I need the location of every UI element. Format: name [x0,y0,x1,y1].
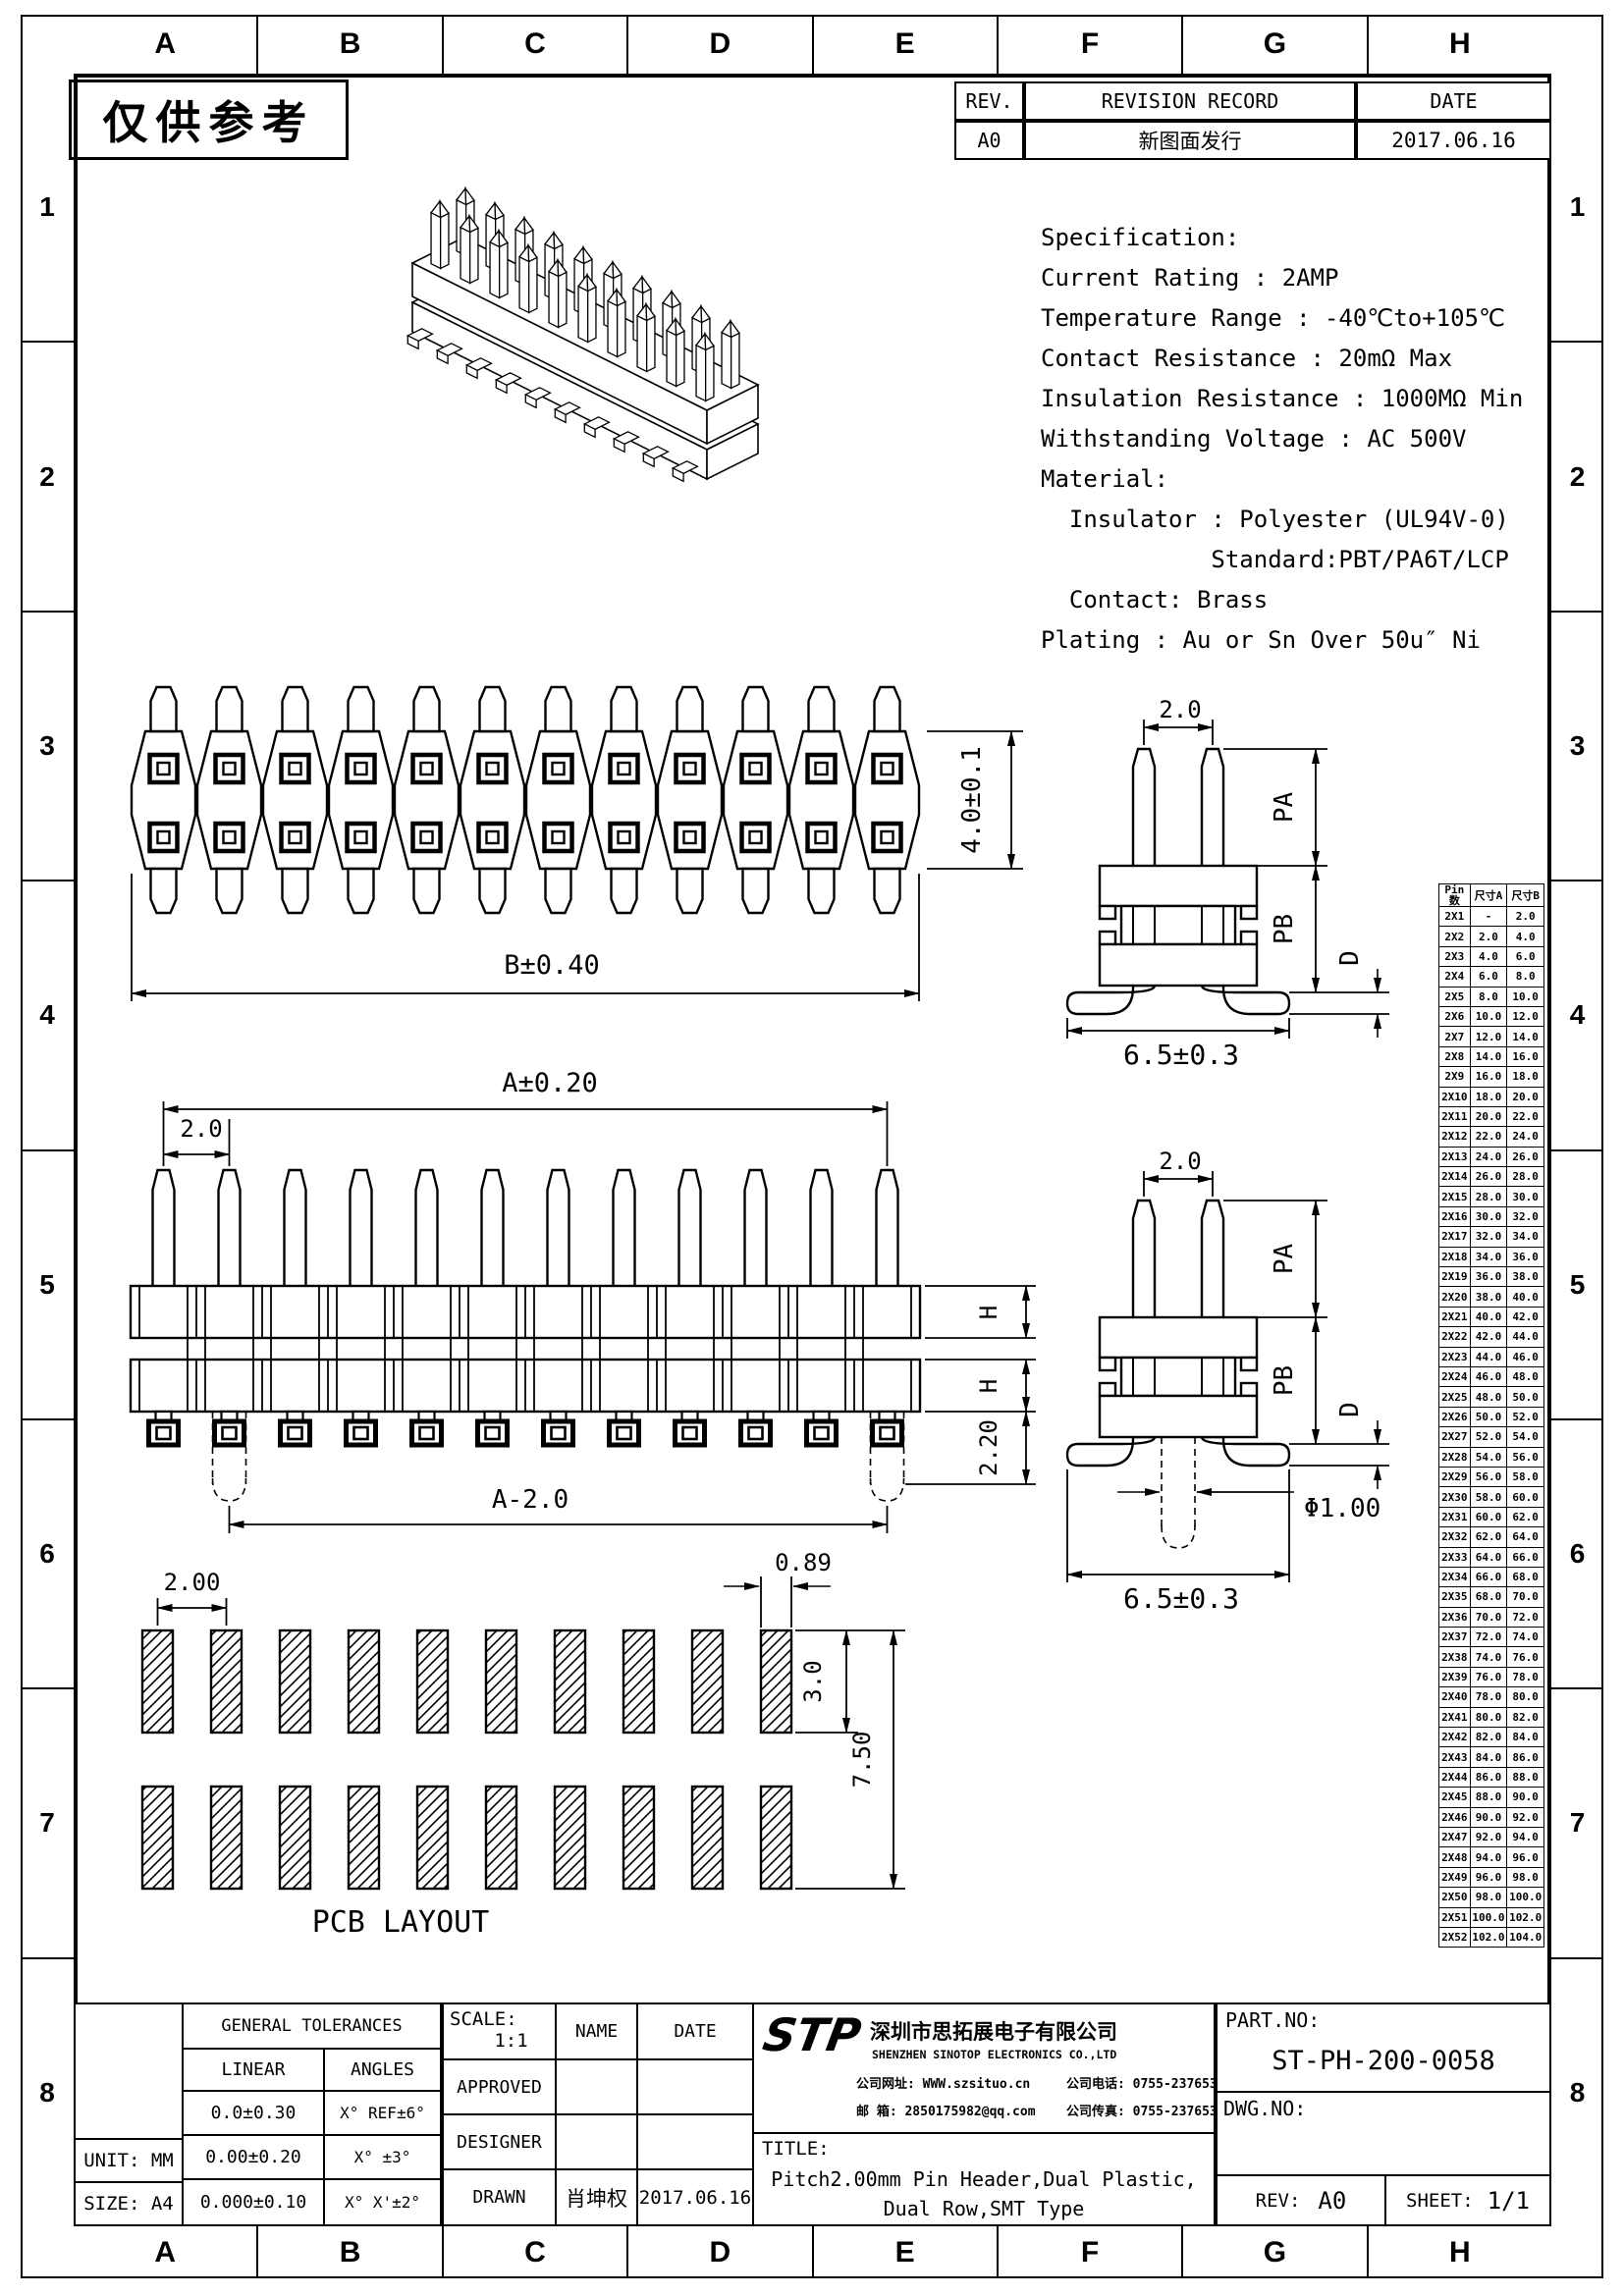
size-table-cell: 2X32 [1439,1527,1471,1547]
size-table-cell: 2X18 [1439,1247,1471,1266]
size-table-cell: 2X17 [1439,1227,1471,1247]
size-table-row: 2X4180.082.0 [1439,1707,1544,1727]
size-table-cell: 2X27 [1439,1427,1471,1447]
size-table-cell: 2X8 [1439,1046,1471,1066]
size-table-cell: 78.0 [1470,1687,1507,1707]
name-header: NAME [555,2002,638,2060]
dwg-no-cell: DWG.NO: [1216,2091,1551,2176]
size-table-cell: 76.0 [1470,1667,1507,1686]
size-table-cell: 10.0 [1507,987,1544,1006]
size-table-cell: 56.0 [1470,1467,1507,1486]
size-table-cell: 24.0 [1507,1127,1544,1147]
size-table-cell: 88.0 [1470,1788,1507,1807]
size-table-cell: 24.0 [1470,1147,1507,1166]
size-table-cell: 104.0 [1507,1927,1544,1947]
svg-text:PA: PA [1270,792,1299,824]
pcb-layout-view: 2.000.893.07.50PCB LAYOUT [142,1549,905,1940]
size-table-cell: 2X6 [1439,1006,1471,1026]
size-table-row: 2X58.010.0 [1439,987,1544,1006]
size-table-cell: 10.0 [1470,1006,1507,1026]
size-table-cell: 50.0 [1470,1407,1507,1426]
size-table-row: 2X3568.070.0 [1439,1587,1544,1607]
size-table-cell: 2X51 [1439,1907,1471,1927]
size-table-row: 2X52102.0104.0 [1439,1927,1544,1947]
svg-text:3.0: 3.0 [799,1660,827,1702]
size-table-cell: 2X5 [1439,987,1471,1006]
pcb-pad [349,1630,379,1733]
size-table-cell: 2X37 [1439,1628,1471,1647]
size-table-row: 2X2242.044.0 [1439,1327,1544,1347]
approved-name-cell [555,2058,638,2115]
size-table-cell: 2X50 [1439,1888,1471,1907]
size-table-row: 2X3160.062.0 [1439,1507,1544,1526]
svg-text:PB: PB [1270,1365,1299,1396]
company-name-en: SHENZHEN SINOTOP ELECTRONICS CO.,LTD [872,2048,1116,2061]
size-table-cell: 60.0 [1507,1487,1544,1507]
website-label: 公司网址: [856,2077,915,2092]
size-table-header-pins: Pin数 [1439,884,1471,907]
pcb-pad [486,1787,516,1889]
size-table-row: 2X2548.050.0 [1439,1387,1544,1407]
svg-text:D: D [1335,1402,1365,1417]
size-table-cell: 2X11 [1439,1106,1471,1126]
size-table-cell: - [1470,907,1507,927]
size-table-cell: 42.0 [1507,1307,1544,1326]
pcb-pad [142,1630,173,1733]
size-table-cell: 2X30 [1439,1487,1471,1507]
size-table-cell: 66.0 [1507,1547,1544,1567]
size-table-cell: 2X44 [1439,1767,1471,1787]
size-table-row: 2X1222.024.0 [1439,1127,1544,1147]
size-table-cell: 2X45 [1439,1788,1471,1807]
scale-cell: SCALE: 1:1 [442,2002,557,2060]
size-table-cell: 98.0 [1470,1888,1507,1907]
size-table-row: 2X916.018.0 [1439,1067,1544,1087]
svg-text:2.20: 2.20 [975,1419,1002,1476]
size-table-cell: 2X34 [1439,1567,1471,1586]
designer-label: DESIGNER [442,2113,557,2170]
website-value: WWW.szsituo.cn [923,2077,1031,2092]
size-table-row: 2X1324.026.0 [1439,1147,1544,1166]
svg-text:D: D [1335,950,1365,966]
rev-label: REV: [1256,2190,1301,2212]
size-table-header-b: 尺寸B [1507,884,1544,907]
size-table-cell: 2.0 [1470,927,1507,946]
size-table-row: 2X2854.056.0 [1439,1447,1544,1467]
size-table: Pin数 尺寸A 尺寸B 2X1-2.02X22.04.02X34.06.02X… [1438,883,1544,1948]
company-fax: 公司传真: 0755-23765341 [1066,2101,1232,2119]
size-table-cell: 48.0 [1507,1366,1544,1386]
unit-label: UNIT: MM [74,2138,184,2183]
size-table-row: 2X4894.096.0 [1439,1847,1544,1867]
size-table-cell: 26.0 [1507,1147,1544,1166]
size-table-cell: 36.0 [1507,1247,1544,1266]
designer-name-cell [555,2113,638,2170]
size-table-row: 2X4996.098.0 [1439,1867,1544,1887]
size-table-cell: 2X14 [1439,1167,1471,1187]
size-table-row: 2X34.06.0 [1439,946,1544,966]
part-no-label: PART.NO: [1225,2008,1320,2032]
size-table-cell: 88.0 [1507,1767,1544,1787]
tolerance-linear-3: 0.000±0.10 [182,2178,325,2226]
size-table-cell: 2X26 [1439,1407,1471,1426]
side-view-lower: 2.0PAPBD6.5±0.3Φ1.00 [1067,1148,1389,1615]
svg-text:4.0±0.1: 4.0±0.1 [957,746,987,854]
size-table-cell: 92.0 [1470,1827,1507,1846]
pcb-pad [692,1787,723,1889]
size-table-cell: 2X38 [1439,1647,1471,1667]
size-table-cell: 2X1 [1439,907,1471,927]
size-table-cell: 80.0 [1470,1707,1507,1727]
size-table-cell: 96.0 [1470,1867,1507,1887]
size-table-cell: 2X42 [1439,1728,1471,1747]
date-header: DATE [636,2002,754,2060]
size-table-cell: 2X4 [1439,967,1471,987]
size-table-cell: 2X36 [1439,1607,1471,1627]
size-table-cell: 30.0 [1507,1187,1544,1206]
size-table-cell: 4.0 [1507,927,1544,946]
size-table-cell: 38.0 [1507,1267,1544,1287]
size-table-cell: 2X31 [1439,1507,1471,1526]
size-table-cell: 72.0 [1507,1607,1544,1627]
size-table-cell: 102.0 [1507,1907,1544,1927]
size-table-row: 2X3364.066.0 [1439,1547,1544,1567]
size-table-cell: 2X10 [1439,1087,1471,1106]
sheet-label: SHEET: [1406,2190,1474,2212]
size-table-cell: 94.0 [1507,1827,1544,1846]
size-table-cell: 52.0 [1507,1407,1544,1426]
svg-text:PA: PA [1270,1244,1299,1275]
size-table-cell: 64.0 [1507,1527,1544,1547]
size-table-row: 2X610.012.0 [1439,1006,1544,1026]
size-table-row: 2X3976.078.0 [1439,1667,1544,1686]
svg-text:0.89: 0.89 [775,1549,832,1576]
size-table-row: 2X3772.074.0 [1439,1628,1544,1647]
tolerance-linear-header: LINEAR [182,2048,325,2092]
size-table-cell: 60.0 [1470,1507,1507,1526]
size-table-cell: 2X21 [1439,1307,1471,1326]
size-table-cell: 68.0 [1507,1567,1544,1586]
size-table-row: 2X4384.086.0 [1439,1747,1544,1767]
company-cell: STP 深圳市思拓展电子有限公司 SHENZHEN SINOTOP ELECTR… [752,2002,1216,2134]
size-label: SIZE: A4 [74,2181,184,2226]
size-table-row: 2X46.08.0 [1439,967,1544,987]
size-table-row: 2X3874.076.0 [1439,1647,1544,1667]
size-table-cell: 2X41 [1439,1707,1471,1727]
size-table-cell: 64.0 [1470,1547,1507,1567]
size-table-cell: 90.0 [1470,1807,1507,1827]
size-table-row: 2X814.016.0 [1439,1046,1544,1066]
size-table-cell: 2X47 [1439,1827,1471,1846]
size-table-cell: 44.0 [1470,1347,1507,1366]
size-table-cell: 52.0 [1470,1427,1507,1447]
size-table-cell: 58.0 [1470,1487,1507,1507]
size-table-cell: 2X2 [1439,927,1471,946]
size-table-cell: 74.0 [1470,1647,1507,1667]
size-table-cell: 2X52 [1439,1927,1471,1947]
size-table-cell: 38.0 [1470,1287,1507,1307]
size-table-cell: 6.0 [1470,967,1507,987]
size-table-cell: 2X12 [1439,1127,1471,1147]
title-cell: TITLE: Pitch2.00mm Pin Header,Dual Plast… [752,2132,1216,2226]
company-tel: 公司电话: 0755-23765350 [1066,2073,1232,2092]
size-table-row: 2X1426.028.0 [1439,1167,1544,1187]
size-table-row: 2X1-2.0 [1439,907,1544,927]
drawing-title-line2: Dual Row,SMT Type [754,2197,1214,2220]
size-table-cell: 70.0 [1470,1607,1507,1627]
tolerance-angle-3: X° X'±2° [323,2178,442,2226]
size-table-cell: 2X3 [1439,946,1471,966]
scale-label: SCALE: [450,2008,517,2030]
size-table-cell: 34.0 [1507,1227,1544,1247]
svg-text:H: H [975,1379,1002,1393]
size-table-cell: 2X19 [1439,1267,1471,1287]
size-table-cell: 100.0 [1507,1888,1544,1907]
size-table-cell: 74.0 [1507,1628,1544,1647]
fax-label: 公司传真: [1066,2105,1125,2119]
svg-text:H: H [975,1306,1002,1319]
size-table-row: 2X712.014.0 [1439,1027,1544,1046]
size-table-cell: 2X35 [1439,1587,1471,1607]
size-table-cell: 14.0 [1470,1046,1507,1066]
drawn-label: DRAWN [442,2168,557,2226]
size-table-cell: 16.0 [1507,1046,1544,1066]
size-table-cell: 54.0 [1470,1447,1507,1467]
size-table-row: 2X2344.046.0 [1439,1347,1544,1366]
size-table-row: 2X4792.094.0 [1439,1827,1544,1846]
size-table-row: 2X1018.020.0 [1439,1087,1544,1106]
size-table-cell: 2X49 [1439,1867,1471,1887]
size-table-cell: 54.0 [1507,1427,1544,1447]
designer-date-cell [636,2113,754,2170]
tel-label: 公司电话: [1066,2077,1125,2092]
rev-value: A0 [1318,2187,1346,2215]
svg-text:6.5±0.3: 6.5±0.3 [1123,1582,1239,1615]
size-table-row: 2X51100.0102.0 [1439,1907,1544,1927]
pcb-pad [623,1787,654,1889]
size-table-cell: 16.0 [1470,1067,1507,1087]
size-table-cell: 36.0 [1470,1267,1507,1287]
size-table-row: 2X1834.036.0 [1439,1247,1544,1266]
rev-cell: REV: A0 [1216,2174,1386,2226]
pcb-pad [761,1787,791,1889]
size-table-cell: 82.0 [1470,1728,1507,1747]
size-table-row: 2X2956.058.0 [1439,1467,1544,1486]
size-table-cell: 12.0 [1507,1006,1544,1026]
pcb-pad [692,1630,723,1733]
size-table-cell: 96.0 [1507,1847,1544,1867]
drawing-sheet: ABCDEFGH ABCDEFGH 12345678 12345678 仅供参考… [0,0,1624,2296]
size-table-row: 2X2446.048.0 [1439,1366,1544,1386]
svg-text:B±0.40: B±0.40 [504,950,600,981]
tolerance-angle-1: X° REF±6° [323,2090,442,2136]
size-table-cell: 2X33 [1439,1547,1471,1567]
size-table-cell: 2X23 [1439,1347,1471,1366]
size-table-cell: 20.0 [1507,1087,1544,1106]
size-table-row: 2X2038.040.0 [1439,1287,1544,1307]
size-table-row: 2X4588.090.0 [1439,1788,1544,1807]
tolerance-angle-2: X° ±3° [323,2134,442,2180]
size-table-cell: 2X20 [1439,1287,1471,1307]
company-name-cn: 深圳市思拓展电子有限公司 [870,2016,1117,2046]
size-table-cell: 2X39 [1439,1667,1471,1686]
size-table-cell: 22.0 [1507,1106,1544,1126]
svg-text:2.00: 2.00 [164,1569,221,1596]
size-table-cell: 58.0 [1507,1467,1544,1486]
size-table-cell: 4.0 [1470,946,1507,966]
tolerance-angles-header: ANGLES [323,2048,442,2092]
size-table-cell: 2X25 [1439,1387,1471,1407]
size-table-cell: 28.0 [1470,1187,1507,1206]
size-table-cell: 18.0 [1470,1087,1507,1106]
size-table-cell: 80.0 [1507,1687,1544,1707]
company-website: 公司网址: WWW.szsituo.cn [856,2073,1030,2092]
size-table-cell: 2X40 [1439,1687,1471,1707]
general-tolerances-title: GENERAL TOLERANCES [182,2002,442,2050]
pcb-pad [555,1787,585,1889]
scale-value: 1:1 [494,2030,527,2052]
size-table-cell: 84.0 [1507,1728,1544,1747]
size-table-cell: 46.0 [1507,1347,1544,1366]
pcb-pad [280,1630,310,1733]
size-table-cell: 2X43 [1439,1747,1471,1767]
size-table-row: 2X4078.080.0 [1439,1687,1544,1707]
size-table-cell: 34.0 [1470,1247,1507,1266]
size-table-row: 2X4282.084.0 [1439,1728,1544,1747]
size-table-cell: 30.0 [1470,1206,1507,1226]
size-table-cell: 82.0 [1507,1707,1544,1727]
pcb-pad [417,1787,448,1889]
isometric-view [407,188,758,481]
size-table-cell: 44.0 [1507,1327,1544,1347]
size-table-row: 2X3466.068.0 [1439,1567,1544,1586]
svg-text:Φ1.00: Φ1.00 [1304,1494,1380,1523]
pcb-pad [211,1630,242,1733]
size-table-row: 2X3058.060.0 [1439,1487,1544,1507]
size-table-cell: 92.0 [1507,1807,1544,1827]
size-table-cell: 102.0 [1470,1927,1507,1947]
drawing-title-line1: Pitch2.00mm Pin Header,Dual Plastic, [754,2167,1214,2191]
size-table-cell: 12.0 [1470,1027,1507,1046]
size-table-cell: 28.0 [1507,1167,1544,1187]
svg-text:PCB LAYOUT: PCB LAYOUT [312,1905,490,1940]
size-table-cell: 62.0 [1507,1507,1544,1526]
size-table-row: 2X3262.064.0 [1439,1527,1544,1547]
tolerance-linear-2: 0.00±0.20 [182,2134,325,2180]
projection-symbol-cell [74,2002,184,2140]
size-table-cell: 72.0 [1470,1628,1507,1647]
pcb-pad [211,1787,242,1889]
size-table-header-a: 尺寸A [1470,884,1507,907]
size-table-cell: 2X15 [1439,1187,1471,1206]
size-table-cell: 78.0 [1507,1667,1544,1686]
company-email: 邮 箱: 2850175982@qq.com [856,2101,1036,2119]
svg-text:A±0.20: A±0.20 [502,1068,598,1098]
size-table-cell: 2X29 [1439,1467,1471,1486]
size-table-cell: 70.0 [1507,1587,1544,1607]
size-table-cell: 2X28 [1439,1447,1471,1467]
size-table-cell: 8.0 [1470,987,1507,1006]
size-table-cell: 40.0 [1470,1307,1507,1326]
size-table-cell: 2X13 [1439,1147,1471,1166]
size-table-cell: 32.0 [1470,1227,1507,1247]
size-table-row: 2X1120.022.0 [1439,1106,1544,1126]
size-table-row: 2X4486.088.0 [1439,1767,1544,1787]
size-table-cell: 2.0 [1507,907,1544,927]
main-drawing-svg: B±0.404.0±0.1 A±0.202.0HH2.20A-2.0 2.0PA… [0,0,1624,2296]
pcb-pad [486,1630,516,1733]
size-table-cell: 18.0 [1507,1067,1544,1087]
size-table-cell: 2X46 [1439,1807,1471,1827]
svg-text:7.50: 7.50 [848,1732,876,1789]
front-view: A±0.202.0HH2.20A-2.0 [131,1068,1036,1533]
pcb-pad [761,1630,791,1733]
size-table-cell: 22.0 [1470,1127,1507,1147]
pcb-pad [280,1787,310,1889]
size-table-cell: 76.0 [1507,1647,1544,1667]
size-table-cell: 62.0 [1470,1527,1507,1547]
size-table-cell: 66.0 [1470,1567,1507,1586]
pcb-pad [349,1787,379,1889]
size-table-row: 2X5098.0100.0 [1439,1888,1544,1907]
approved-date-cell [636,2058,754,2115]
size-table-row: 2X1630.032.0 [1439,1206,1544,1226]
size-table-cell: 8.0 [1507,967,1544,987]
size-table-row: 2X2650.052.0 [1439,1407,1544,1426]
size-table-row: 2X2140.042.0 [1439,1307,1544,1326]
size-table-cell: 56.0 [1507,1447,1544,1467]
size-table-cell: 94.0 [1470,1847,1507,1867]
pcb-pad [555,1630,585,1733]
size-table-cell: 86.0 [1507,1747,1544,1767]
size-table-row: 2X1732.034.0 [1439,1227,1544,1247]
stp-logo: STP [760,2012,864,2057]
email-value: 2850175982@qq.com [904,2105,1035,2119]
svg-text:PB: PB [1270,914,1299,944]
size-table-cell: 2X7 [1439,1027,1471,1046]
size-table-row: 2X2752.054.0 [1439,1427,1544,1447]
size-table-cell: 2X48 [1439,1847,1471,1867]
approved-label: APPROVED [442,2058,557,2115]
size-table-row: 2X4690.092.0 [1439,1807,1544,1827]
size-table-cell: 2X16 [1439,1206,1471,1226]
size-table-cell: 26.0 [1470,1167,1507,1187]
svg-text:2.0: 2.0 [1159,1148,1201,1175]
size-table-cell: 86.0 [1470,1767,1507,1787]
size-table-cell: 42.0 [1470,1327,1507,1347]
size-table-cell: 46.0 [1470,1366,1507,1386]
svg-text:6.5±0.3: 6.5±0.3 [1123,1039,1239,1071]
size-table-cell: 2X24 [1439,1366,1471,1386]
part-no-cell: PART.NO: ST-PH-200-0058 [1216,2002,1551,2093]
size-table-cell: 14.0 [1507,1027,1544,1046]
size-table-row: 2X22.04.0 [1439,927,1544,946]
svg-text:2.0: 2.0 [180,1115,222,1143]
svg-text:2.0: 2.0 [1159,696,1201,723]
size-table-row: 2X1936.038.0 [1439,1267,1544,1287]
drawn-name: 肖坤权 [555,2168,638,2226]
part-no-value: ST-PH-200-0058 [1218,2046,1549,2076]
title-label: TITLE: [762,2138,830,2160]
size-table-cell: 48.0 [1470,1387,1507,1407]
size-table-cell: 90.0 [1507,1788,1544,1807]
size-table-cell: 32.0 [1507,1206,1544,1226]
size-table-cell: 40.0 [1507,1287,1544,1307]
tolerance-linear-1: 0.0±0.30 [182,2090,325,2136]
email-label: 邮 箱: [856,2105,897,2119]
pcb-pad [417,1630,448,1733]
top-view: B±0.404.0±0.1 [132,687,1023,1001]
